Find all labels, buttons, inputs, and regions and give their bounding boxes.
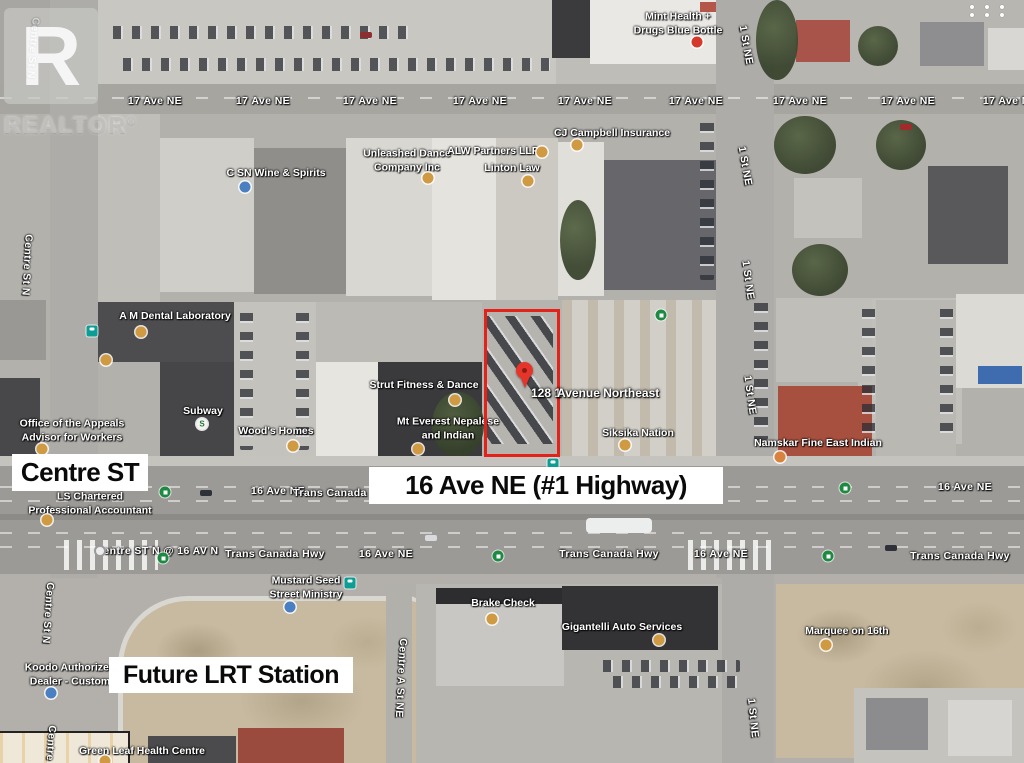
poi-poi-icon	[654, 635, 665, 646]
grid-dot	[970, 13, 974, 17]
property-address-street: Avenue Northeast	[557, 386, 659, 400]
business-label-line: Advisor for Workers	[20, 431, 125, 445]
street-label: Trans Canada Hwy	[910, 550, 1010, 562]
business-label: Office of the AppealsAdvisor for Workers	[20, 417, 125, 444]
business-label-line: ALW Partners LLP	[447, 145, 539, 159]
business-label: A M Dental Laboratory	[119, 310, 231, 324]
parked-cars	[600, 660, 740, 672]
business-label: Unleashed DanceCompany Inc	[363, 147, 451, 174]
business-label: Koodo AuthorizedDealer - Custom	[25, 661, 116, 688]
business-label: C SN Wine & Spirits	[226, 167, 325, 181]
building	[160, 138, 254, 292]
poi-poi-icon	[288, 441, 299, 452]
stop-green-transit-icon	[158, 553, 169, 564]
street-label: Trans Canada Hwy	[225, 548, 325, 560]
road-median	[0, 514, 1024, 520]
business-label: Brake Check	[471, 597, 535, 611]
parking-lot	[776, 298, 872, 382]
building	[0, 300, 46, 360]
business-label-line: Drugs Blue Bottle	[634, 24, 723, 38]
poi-poi-icon	[572, 140, 583, 151]
business-label-line: CJ Campbell Insurance	[554, 127, 670, 141]
poi-poi-icon	[37, 444, 48, 455]
car	[425, 535, 437, 541]
building	[988, 28, 1024, 70]
building	[796, 20, 850, 62]
realtor-logo-icon: R	[4, 8, 98, 104]
poi-poi-icon	[537, 147, 548, 158]
annotation-16-ave-highway: 16 Ave NE (#1 Highway)	[369, 467, 723, 504]
subway-poi-icon: S	[197, 419, 208, 430]
stop-green-transit-icon	[160, 487, 171, 498]
registered-trademark-symbol: ®	[127, 115, 137, 127]
parking-lot	[316, 302, 482, 362]
blue-poi-icon	[46, 688, 57, 699]
car	[200, 490, 212, 496]
poi-poi-icon	[100, 756, 111, 763]
lane-marking	[0, 532, 1024, 534]
business-label-line: LS Chartered	[28, 490, 151, 504]
building	[866, 698, 928, 750]
business-label-line: Street Ministry	[270, 588, 343, 602]
poi-poi-icon	[620, 440, 631, 451]
building	[552, 0, 590, 58]
poi-poi-icon	[450, 395, 461, 406]
bus-teal-transit-icon	[87, 326, 98, 337]
grid-dot	[1000, 5, 1004, 9]
stop-green-transit-icon	[823, 551, 834, 562]
business-label: ALW Partners LLP	[447, 145, 539, 159]
business-label: Green Leaf Health Centre	[79, 745, 205, 759]
building	[436, 604, 564, 686]
realtor-brand-text: REALTOR	[4, 112, 127, 138]
parked-cars	[862, 306, 875, 440]
parked-cars	[754, 300, 768, 440]
building	[794, 178, 862, 238]
business-label-line: A M Dental Laboratory	[119, 310, 231, 324]
business-label-line: Namskar Fine East Indian	[754, 437, 882, 451]
business-label: Marquee on 16th	[805, 625, 888, 639]
street-label: 17 Ave NE	[669, 95, 723, 107]
parked-cars	[940, 306, 953, 440]
realtor-logo-letter: R	[21, 14, 82, 98]
sidewalk	[0, 456, 1024, 466]
stop-green-transit-icon	[840, 483, 851, 494]
building	[978, 366, 1022, 384]
business-label-line: C SN Wine & Spirits	[226, 167, 325, 181]
pin-core-icon	[522, 368, 527, 373]
business-label-line: Unleashed Dance	[363, 147, 451, 161]
poi-poi-icon	[101, 355, 112, 366]
poi-poi-icon	[487, 614, 498, 625]
business-label-line: Dealer - Custom	[25, 675, 116, 689]
apps-grid-icon[interactable]	[970, 5, 1004, 17]
business-label-line: Brake Check	[471, 597, 535, 611]
business-label: Linton Law	[484, 162, 539, 176]
grid-dot	[985, 13, 989, 17]
parked-cars	[700, 120, 714, 280]
poi-poi-icon	[42, 515, 53, 526]
grid-dot	[1000, 13, 1004, 17]
poi-poi-icon	[413, 444, 424, 455]
parking-lot	[98, 114, 160, 302]
annotation-centre-st: Centre ST	[12, 454, 148, 491]
realtor-watermark: R REALTOR®	[4, 8, 137, 139]
pin-tip-icon	[520, 376, 530, 393]
car	[885, 545, 897, 551]
satellite-map: 17 Ave NE17 Ave NE17 Ave NE17 Ave NE17 A…	[0, 0, 1024, 763]
grid-dot	[985, 5, 989, 9]
building	[562, 586, 718, 650]
street-label: 17 Ave NE	[236, 95, 290, 107]
business-label-line: Office of the Appeals	[20, 417, 125, 431]
business-label-line: Company Inc	[363, 161, 451, 175]
shop-poi-icon	[692, 37, 703, 48]
business-label-line: Strut Fitness & Dance	[369, 379, 478, 393]
business-label-line: Koodo Authorized	[25, 661, 116, 675]
business-label: Subway	[183, 405, 223, 419]
business-label: Namskar Fine East Indian	[754, 437, 882, 451]
business-label: Gigantelli Auto Services	[562, 621, 682, 635]
car	[900, 124, 912, 130]
business-label: Mustard SeedStreet Ministry	[270, 574, 343, 601]
business-label-line: Mint Health +	[634, 10, 723, 24]
street-label: 17 Ave NE	[558, 95, 612, 107]
business-label: Wood's Homes	[238, 425, 313, 439]
blue-poi-icon	[285, 602, 296, 613]
street-label: 17 Ave NE	[881, 95, 935, 107]
business-label: Strut Fitness & Dance	[369, 379, 478, 393]
parked-cars	[120, 58, 550, 71]
business-label-line: Marquee on 16th	[805, 625, 888, 639]
tree	[774, 116, 836, 174]
poi-poi-icon	[821, 640, 832, 651]
building	[316, 362, 378, 456]
business-label-line: Mustard Seed	[270, 574, 343, 588]
tree	[756, 0, 798, 80]
bus-on-road	[586, 518, 652, 533]
street-label: 16 Ave NE	[938, 481, 992, 493]
business-label: Siksika Nation	[602, 427, 674, 441]
tree	[858, 26, 898, 66]
business-label-line: Subway	[183, 405, 223, 419]
car	[360, 32, 372, 38]
poi-poi-icon	[136, 327, 147, 338]
business-label: Mint Health +Drugs Blue Bottle	[634, 10, 723, 37]
stop-green-transit-icon	[656, 310, 667, 321]
street-label: 17 Ave NE	[453, 95, 507, 107]
business-label-line: Gigantelli Auto Services	[562, 621, 682, 635]
business-label: CJ Campbell Insurance	[554, 127, 670, 141]
stop-green-transit-icon	[493, 551, 504, 562]
parking-lot	[98, 0, 556, 86]
building	[928, 166, 1008, 264]
realtor-wordmark: REALTOR®	[4, 112, 137, 139]
grid-dot	[970, 5, 974, 9]
blue-poi-icon	[240, 182, 251, 193]
stop-gray-transit-icon	[94, 545, 106, 557]
tree	[560, 200, 596, 280]
building	[948, 700, 1012, 756]
poi-poi-icon	[523, 176, 534, 187]
street-label: 16 Ave NE	[359, 548, 413, 560]
street-label: 17 Ave NE	[983, 95, 1024, 107]
street-label: 17 Ave NE	[773, 95, 827, 107]
business-label-line: Green Leaf Health Centre	[79, 745, 205, 759]
food-poi-icon	[775, 452, 786, 463]
annotation-future-lrt-station: Future LRT Station	[109, 657, 353, 693]
street-label: Centre St N	[19, 234, 34, 296]
street-label: 17 Ave NE	[343, 95, 397, 107]
parked-cars	[610, 676, 740, 688]
building	[778, 386, 872, 464]
tree	[792, 244, 848, 296]
street-label: 16 Ave NE	[694, 548, 748, 560]
business-label-line: Linton Law	[484, 162, 539, 176]
building	[920, 22, 984, 66]
building	[238, 728, 344, 763]
street-label: Trans Canada Hwy	[559, 548, 659, 560]
business-label-line: Wood's Homes	[238, 425, 313, 439]
business-label-line: Siksika Nation	[602, 427, 674, 441]
poi-poi-icon	[423, 173, 434, 184]
bus-teal-transit-icon	[345, 578, 356, 589]
